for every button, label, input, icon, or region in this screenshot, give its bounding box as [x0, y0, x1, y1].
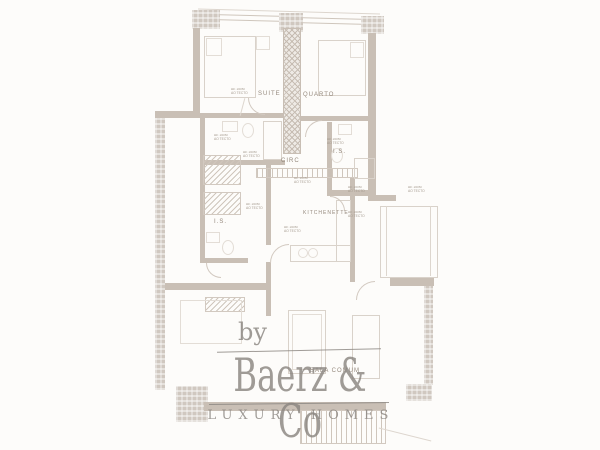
vent-annotation: AE 150MAO TECTO: [348, 211, 365, 218]
room-label-kitchenette: KITCHENETTE: [303, 210, 349, 216]
vent-annotation: AE 150MAO TECTO: [243, 151, 260, 158]
door-arc-bath-right: [330, 196, 345, 211]
ensuite-bathtub: [263, 121, 282, 160]
vent-annotation-line2: AO TECTO: [348, 190, 365, 193]
suite-pillow: [206, 38, 222, 56]
suite-nightstand: [256, 36, 270, 50]
quarto-pillow: [350, 42, 364, 58]
wall-suite-left: [193, 28, 200, 118]
wall-right-step: [390, 278, 434, 286]
right-window-mullion-2: [430, 206, 431, 276]
kitchen-sink-bowl-right: [308, 248, 318, 258]
watermark-tagline: LUXURY HOMES: [205, 408, 397, 423]
door-arc-center: [270, 244, 289, 263]
wall-under-quarto: [300, 116, 368, 121]
vent-annotation-line2: AO TECTO: [327, 142, 344, 145]
is-left-toilet: [222, 240, 234, 255]
vent-annotation: AE 150MAO TECTO: [246, 203, 263, 210]
wall-pillar-top-right: [361, 16, 384, 34]
wall-right-exterior: [424, 286, 433, 385]
floorplan-scan: SUITE QUARTO I.S. CIRC KITCHENETTE I.S. …: [0, 0, 600, 450]
vent-annotation-line2: AO TECTO: [231, 92, 248, 95]
window-line-suite-inner: [220, 19, 279, 22]
vent-annotation-line2: AO TECTO: [348, 215, 365, 218]
wall-pillar-bottom-right: [406, 384, 432, 401]
door-arc-kitchen-sala: [356, 281, 375, 300]
room-label-is-left: I.S.: [214, 219, 227, 225]
wall-left-inner: [200, 118, 205, 263]
wall-left-jog: [155, 111, 200, 118]
wall-sala-top-left: [165, 283, 268, 290]
vent-annotation: AE 150MAO TECTO: [408, 186, 425, 193]
vent-annotation: AE 150MAO TECTO: [284, 226, 301, 233]
door-arc-quarto: [305, 120, 322, 137]
window-line-suite-outer: [220, 14, 279, 17]
vent-annotation: AE 150MAO TECTO: [294, 177, 311, 184]
kitchen-sink-bowl-left: [298, 248, 308, 258]
room-label-suite: SUITE: [258, 91, 281, 97]
wall-left-exterior: [155, 118, 165, 390]
right-window-mullion-1: [386, 206, 387, 276]
wardrobe-hatch-lower: [203, 192, 241, 215]
room-label-quarto: QUARTO: [303, 92, 334, 98]
watermark-brand: Baerz & Co: [216, 352, 384, 444]
vent-annotation-line2: AO TECTO: [214, 138, 231, 141]
wall-quarto-right: [368, 33, 376, 120]
bath-right-sink: [338, 124, 352, 135]
is-left-sink: [206, 232, 220, 243]
wall-under-suite: [200, 113, 283, 118]
vent-annotation-line2: AO TECTO: [284, 230, 301, 233]
sala-sideboard: [180, 300, 242, 344]
room-label-circ: CIRC: [281, 158, 300, 164]
vent-annotation-line2: AO TECTO: [408, 190, 425, 193]
vent-annotation: AE 150MAO TECTO: [214, 134, 231, 141]
window-line-quarto-outer: [303, 17, 361, 20]
window-line-quarto-inner: [303, 22, 361, 25]
room-label-is-right: I.S.: [333, 149, 346, 155]
door-arc-is-left: [206, 263, 221, 278]
vent-annotation: AE 150MAO TECTO: [327, 138, 344, 145]
vent-annotation: AE 150MAO TECTO: [231, 88, 248, 95]
ensuite-toilet: [242, 123, 254, 138]
wardrobe-hatch-upper: [203, 155, 241, 185]
wall-pillar-top-left: [192, 10, 220, 29]
vent-annotation-line2: AO TECTO: [294, 181, 311, 184]
vent-annotation-line2: AO TECTO: [246, 207, 263, 210]
watermark-by: by: [238, 318, 267, 346]
bath-right-shower: [354, 158, 375, 179]
wall-sala-stub: [266, 290, 271, 316]
vent-annotation: AE 150MAO TECTO: [348, 186, 365, 193]
ensuite-sink: [222, 121, 238, 132]
wall-shaft-hatched: [283, 28, 301, 154]
balcony-dimension-line: [379, 427, 432, 441]
vent-annotation-line2: AO TECTO: [243, 155, 260, 158]
